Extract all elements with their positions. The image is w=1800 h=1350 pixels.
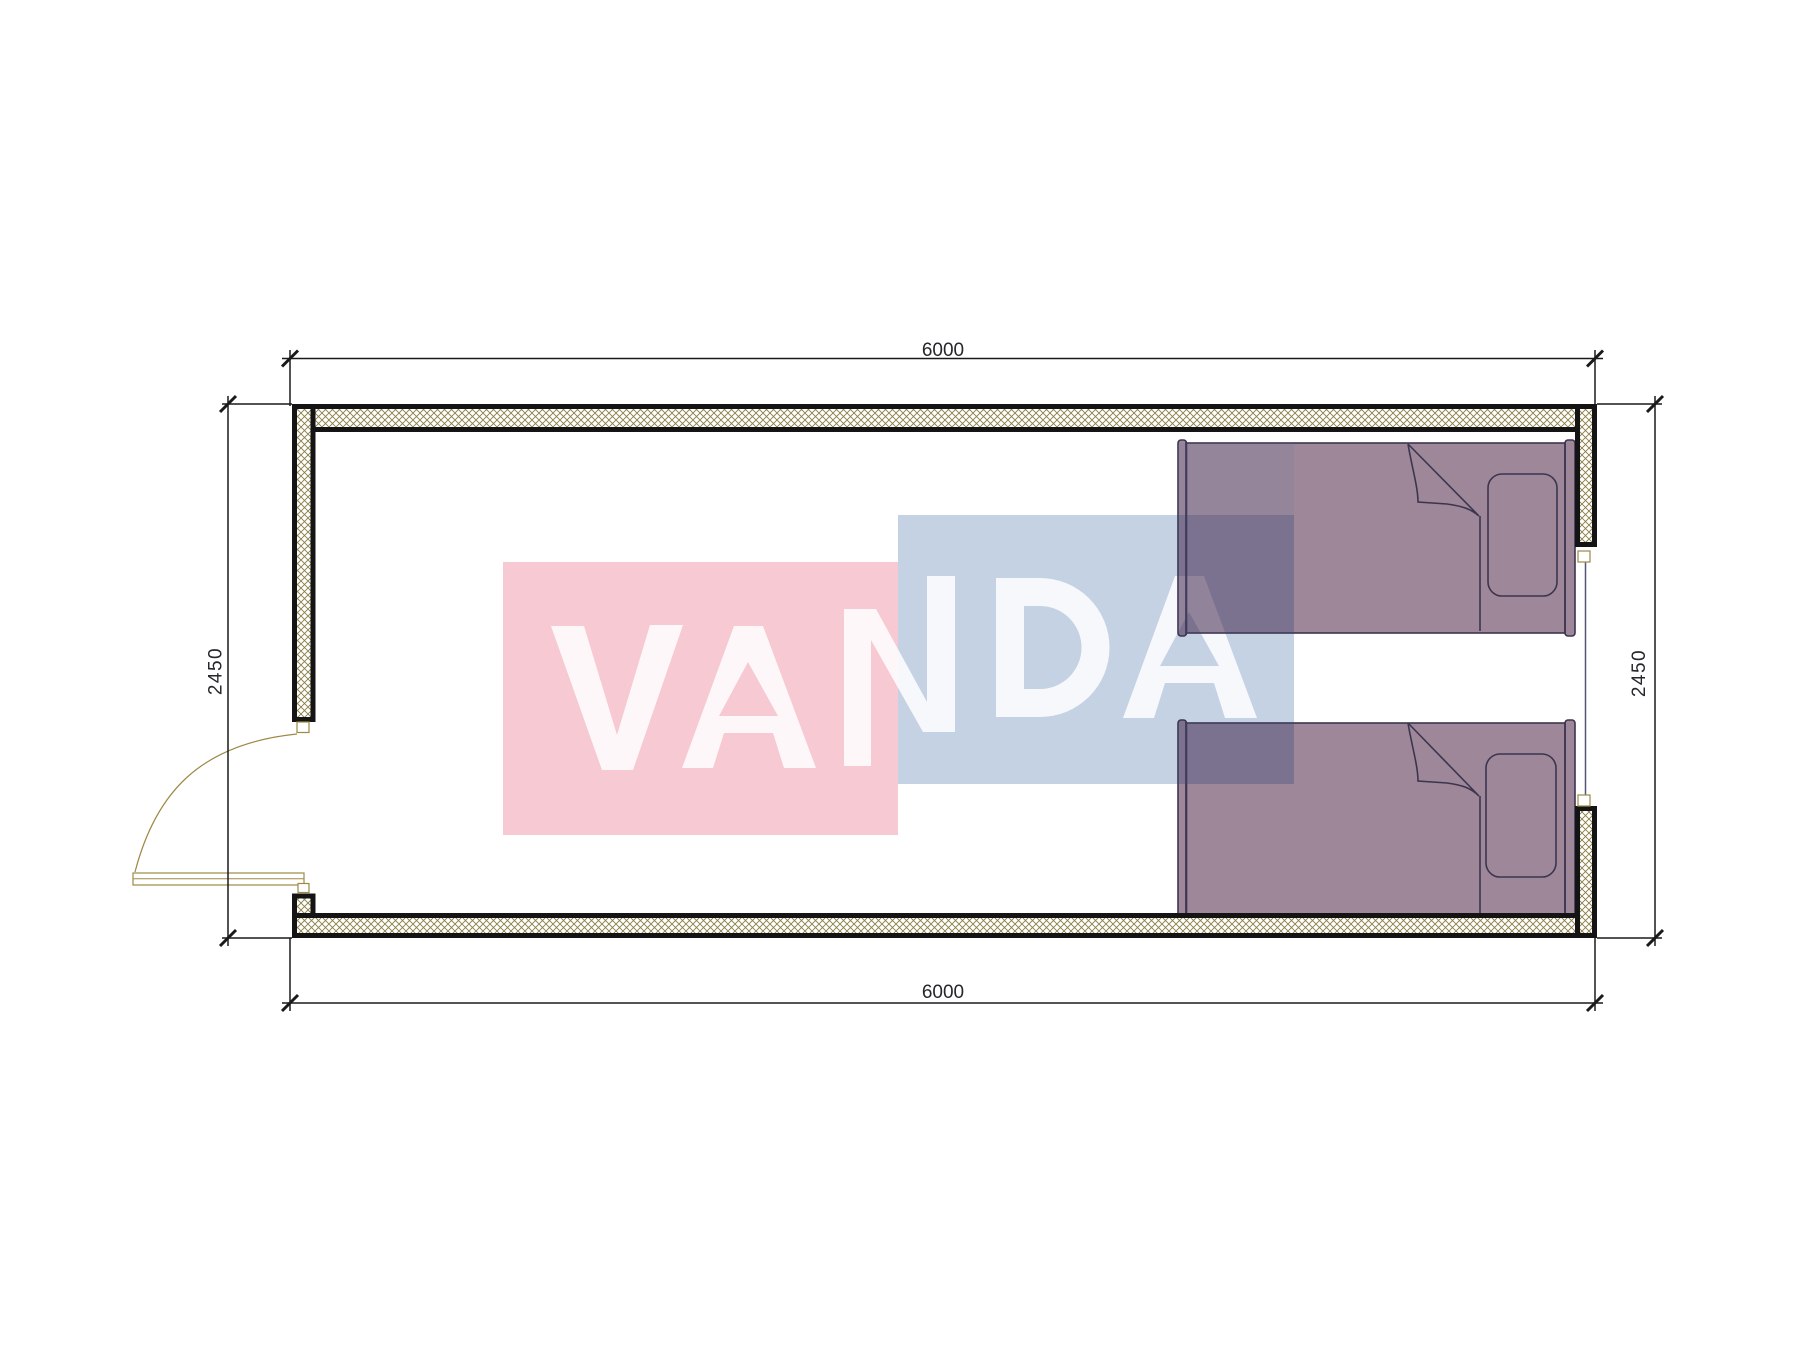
svg-text:6000: 6000	[922, 340, 964, 361]
svg-text:2450: 2450	[1629, 649, 1650, 697]
svg-text:6000: 6000	[922, 982, 964, 1003]
svg-text:2450: 2450	[206, 647, 227, 695]
